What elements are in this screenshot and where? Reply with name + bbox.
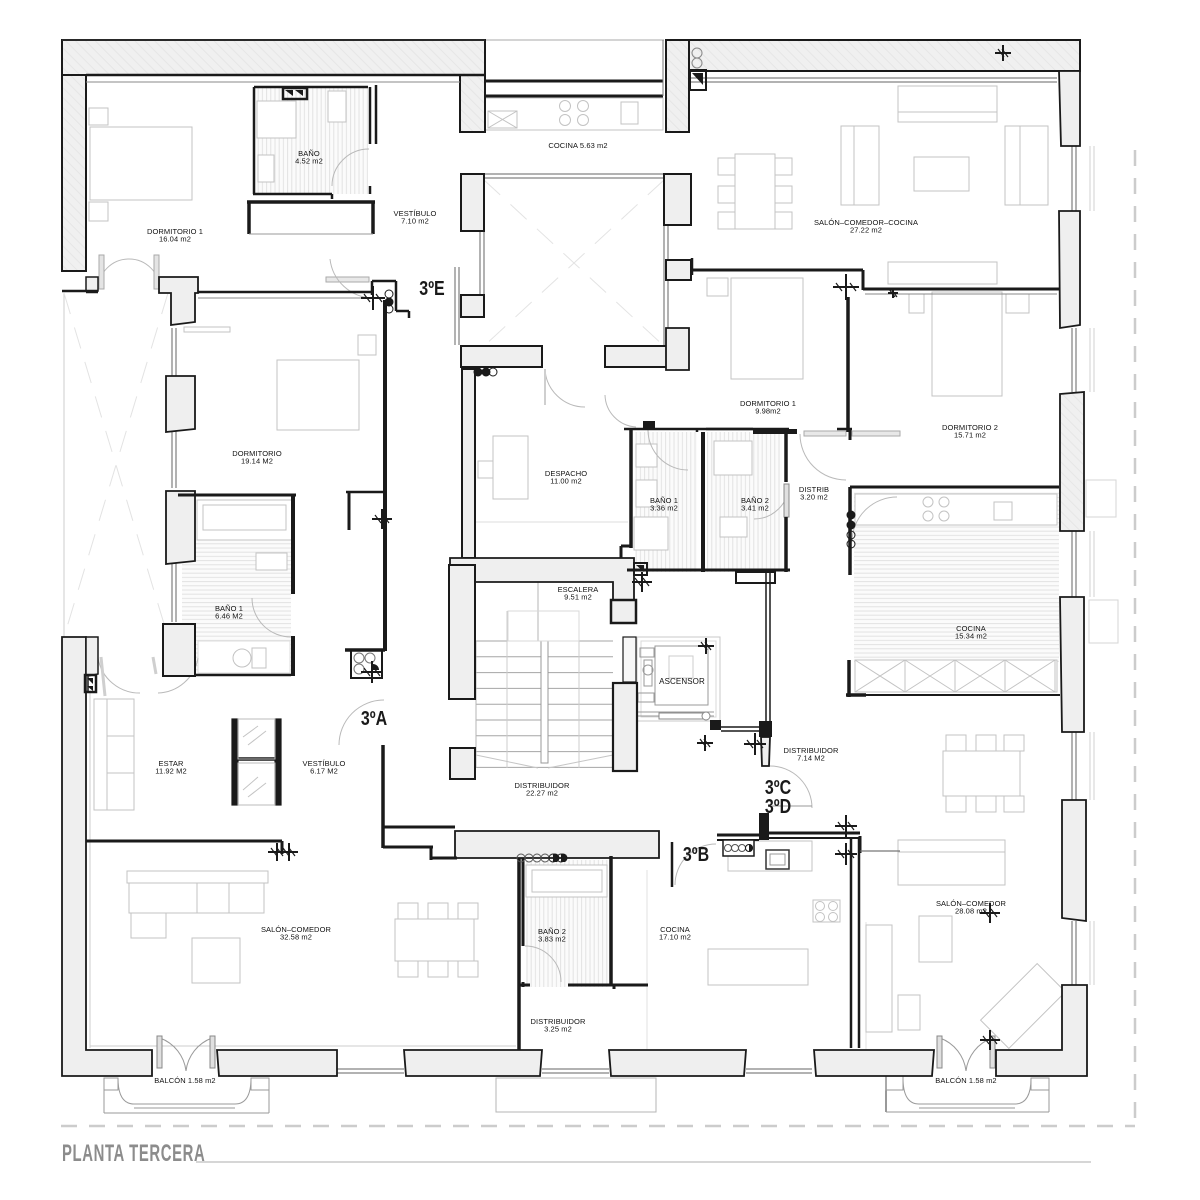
svg-text:9.51 m2: 9.51 m2 xyxy=(564,593,592,602)
svg-text:3.41 m2: 3.41 m2 xyxy=(741,504,769,513)
svg-text:19.14 M2: 19.14 M2 xyxy=(241,457,273,466)
svg-text:3.36 m2: 3.36 m2 xyxy=(650,504,678,513)
svg-text:COCINA 5.63 m2: COCINA 5.63 m2 xyxy=(548,141,607,150)
svg-text:BALCÓN 1.58 m2: BALCÓN 1.58 m2 xyxy=(935,1076,996,1085)
svg-text:3.20 m2: 3.20 m2 xyxy=(800,493,828,502)
svg-text:32.58 m2: 32.58 m2 xyxy=(280,933,312,942)
svg-text:4.52 m2: 4.52 m2 xyxy=(295,157,323,166)
svg-text:PLANTA TERCERA: PLANTA TERCERA xyxy=(62,1141,205,1167)
svg-text:6.46 M2: 6.46 M2 xyxy=(215,612,243,621)
svg-text:3ºB: 3ºB xyxy=(683,843,709,865)
svg-text:3.25 m2: 3.25 m2 xyxy=(544,1025,572,1034)
svg-text:ASCENSOR: ASCENSOR xyxy=(659,677,705,686)
svg-text:7.10 m2: 7.10 m2 xyxy=(401,217,429,226)
svg-text:28.08 m2: 28.08 m2 xyxy=(955,907,987,916)
svg-text:16.04 m2: 16.04 m2 xyxy=(159,235,191,244)
svg-text:9.98m2: 9.98m2 xyxy=(755,407,781,416)
svg-text:15.34 m2: 15.34 m2 xyxy=(955,632,987,641)
svg-text:11.92 M2: 11.92 M2 xyxy=(155,767,187,776)
svg-text:22.27 m2: 22.27 m2 xyxy=(526,789,558,798)
svg-text:3.83 m2: 3.83 m2 xyxy=(538,935,566,944)
svg-text:BALCÓN 1.58 m2: BALCÓN 1.58 m2 xyxy=(154,1076,215,1085)
svg-text:27.22 m2: 27.22 m2 xyxy=(850,226,882,235)
svg-text:6.17 M2: 6.17 M2 xyxy=(310,767,338,776)
svg-text:11.00 m2: 11.00 m2 xyxy=(550,477,582,486)
svg-text:17.10 m2: 17.10 m2 xyxy=(659,933,691,942)
svg-text:7.14 M2: 7.14 M2 xyxy=(797,754,825,763)
svg-text:3ºA: 3ºA xyxy=(361,707,387,729)
svg-text:3ºD: 3ºD xyxy=(765,795,791,817)
svg-text:3ºE: 3ºE xyxy=(419,277,444,299)
svg-text:15.71 m2: 15.71 m2 xyxy=(954,431,986,440)
